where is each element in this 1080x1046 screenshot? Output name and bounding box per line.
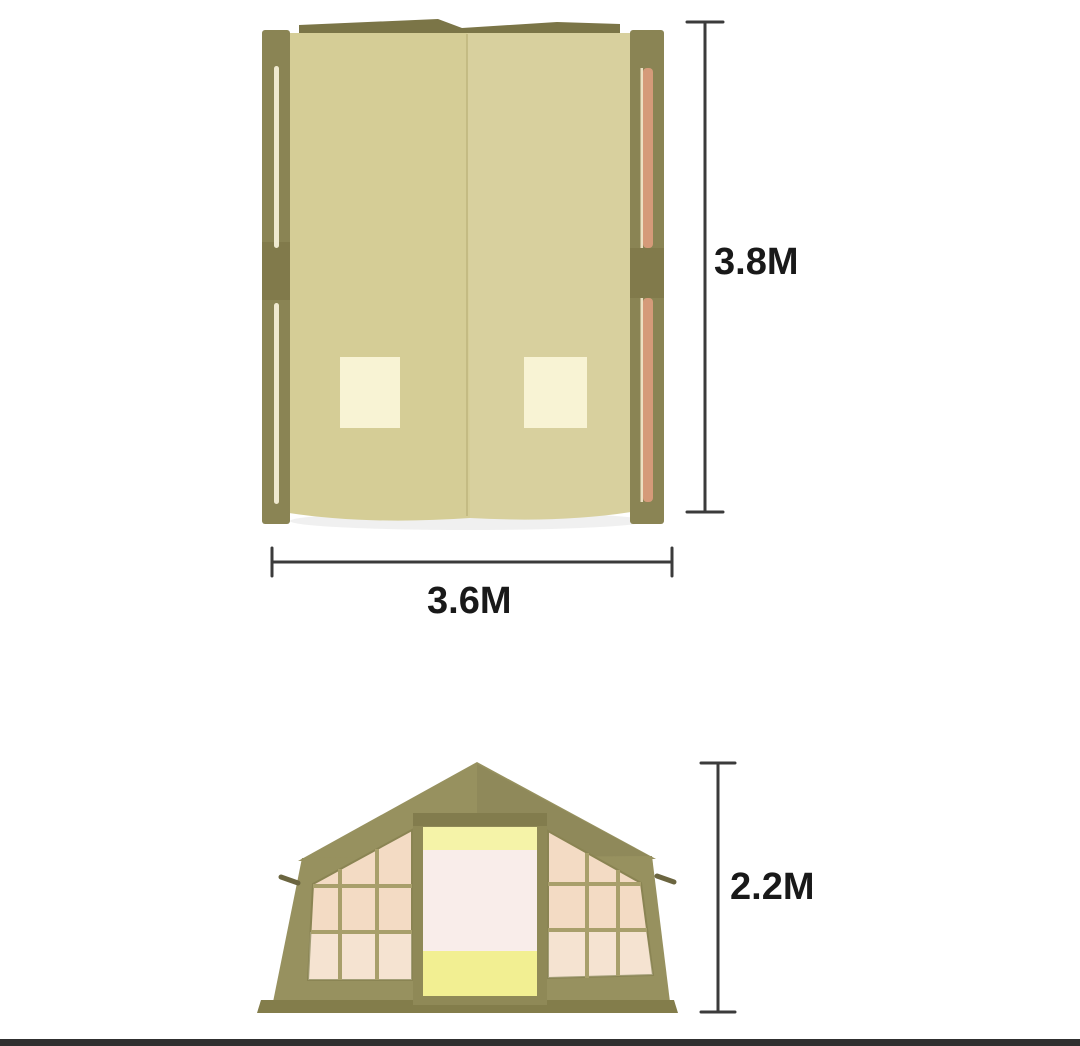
tent-top-view [262, 19, 664, 530]
top-view-left-zipper-lower [274, 303, 279, 504]
front-view-door-lintel [413, 813, 547, 826]
page: 3.8M 3.6M 2.2M [0, 0, 1080, 1046]
top-view-right-rail-joint [630, 248, 664, 298]
top-view-air-pole-upper [643, 68, 653, 248]
top-view-skylight-right [524, 357, 587, 428]
top-view-width-label: 3.6M [427, 582, 511, 620]
front-view-door-bottom-glow [423, 951, 537, 996]
front-view-height-label: 2.2M [730, 868, 814, 906]
front-view-door-top-glow [423, 827, 537, 850]
top-view-left-rail-joint [262, 242, 290, 300]
top-view-left-zipper-upper [274, 66, 279, 248]
top-view-panel-highlight [467, 33, 631, 520]
top-view-ridge-bar [299, 19, 620, 34]
front-view-guy-stub-right [657, 876, 674, 882]
top-view-skylight-left [340, 357, 400, 428]
top-view-right-pole-edge-upper [641, 68, 644, 248]
top-view-air-pole-lower [643, 298, 653, 502]
diagram-canvas [0, 0, 1080, 1046]
footer-bar [0, 1039, 1080, 1046]
front-view-door-panel [423, 850, 537, 951]
front-view-window-left-glow [308, 932, 412, 980]
dimension-line-top-view-width [272, 548, 672, 576]
top-view-height-label: 3.8M [714, 243, 798, 281]
front-view-guy-stub-left [281, 877, 298, 883]
tent-front-view [257, 762, 678, 1013]
front-view-window-right-glow [548, 930, 653, 978]
top-view-right-pole-edge-lower [641, 298, 644, 502]
